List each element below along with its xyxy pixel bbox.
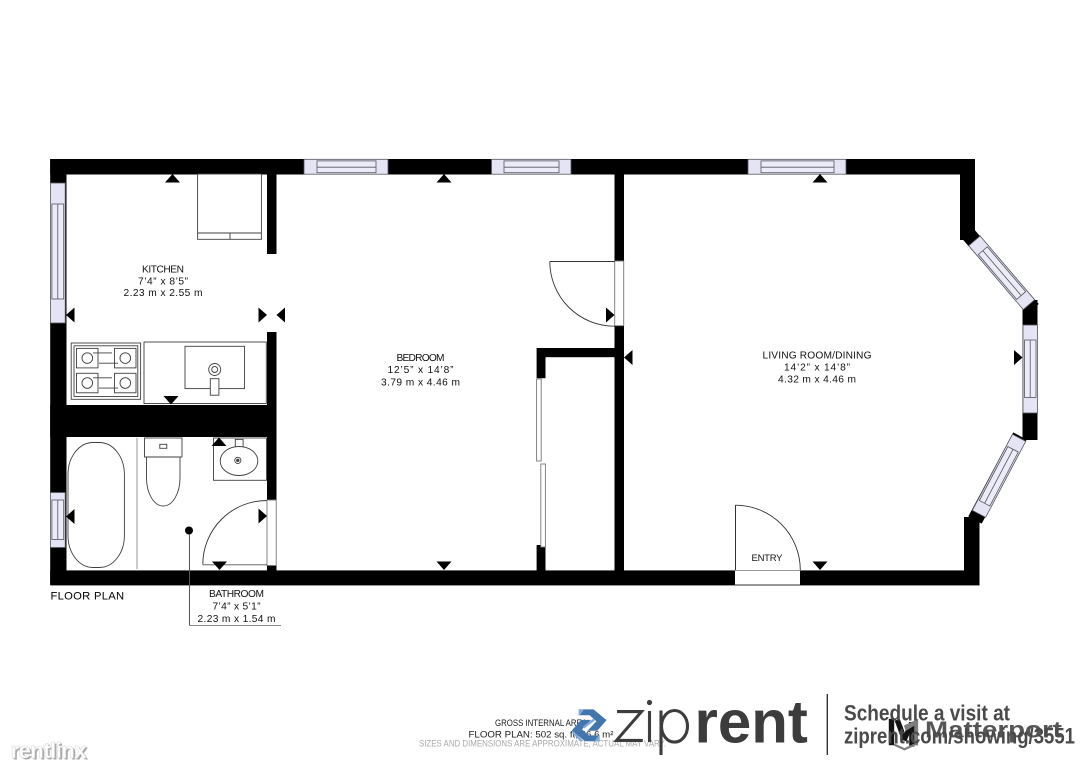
svg-text:FLOOR PLAN: FLOOR PLAN bbox=[51, 591, 125, 603]
svg-text:7’4” x 8’5”: 7’4” x 8’5” bbox=[138, 277, 189, 288]
svg-text:GROSS INTERNAL AREA: GROSS INTERNAL AREA bbox=[495, 718, 588, 729]
svg-text:BEDROOM: BEDROOM bbox=[397, 353, 445, 364]
svg-text:ziprent.com/showing/3551: ziprent.com/showing/3551 bbox=[844, 724, 1075, 749]
svg-text:7’4” x 5’1”: 7’4” x 5’1” bbox=[213, 602, 262, 613]
svg-text:ENTRY: ENTRY bbox=[752, 553, 784, 564]
svg-text:14’2” x 14’8”: 14’2” x 14’8” bbox=[784, 363, 851, 374]
svg-text:4.32 m x 4.46 m: 4.32 m x 4.46 m bbox=[778, 375, 856, 386]
svg-text:2.23 m x 2.55 m: 2.23 m x 2.55 m bbox=[124, 288, 203, 299]
svg-text:LIVING ROOM/DINING: LIVING ROOM/DINING bbox=[763, 351, 872, 362]
svg-text:12’5” x 14’8”: 12’5” x 14’8” bbox=[388, 365, 455, 376]
svg-text:BATHROOM: BATHROOM bbox=[209, 589, 264, 600]
svg-text:3.79 m x 4.46 m: 3.79 m x 4.46 m bbox=[381, 378, 460, 389]
svg-text:rent: rent bbox=[695, 689, 808, 756]
svg-text:Schedule a visit at: Schedule a visit at bbox=[844, 701, 1011, 726]
svg-text:KITCHEN: KITCHEN bbox=[142, 265, 184, 276]
svg-text:2.23 m x 1.54 m: 2.23 m x 1.54 m bbox=[198, 614, 276, 625]
svg-text:rentlinx: rentlinx bbox=[11, 738, 88, 763]
